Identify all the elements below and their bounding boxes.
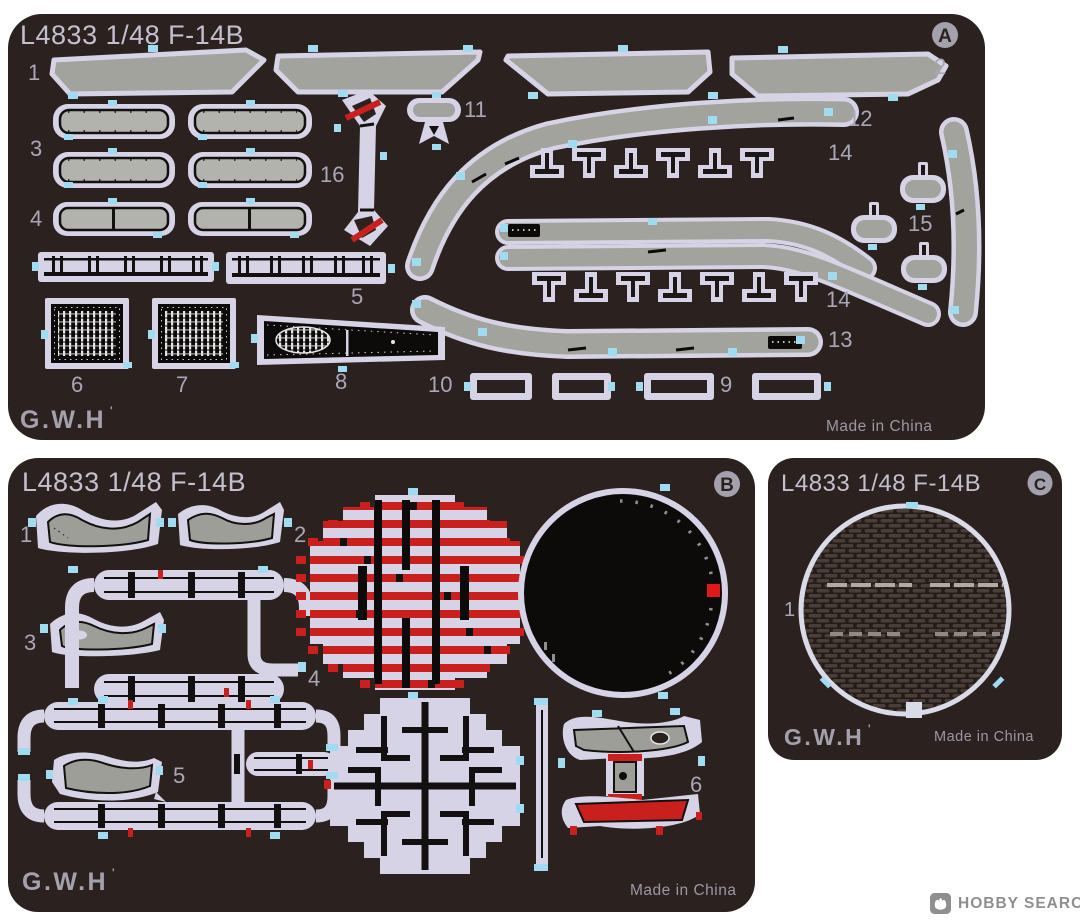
svg-text:B: B bbox=[720, 475, 734, 496]
fret-a-letter-badge: A bbox=[932, 22, 958, 48]
svg-text:13: 13 bbox=[828, 327, 852, 352]
svg-text:11: 11 bbox=[464, 97, 487, 122]
fret-a-gwh-logo: G.W.H bbox=[20, 406, 106, 434]
fret-a-origin: Made in China bbox=[826, 418, 932, 435]
svg-text:2: 2 bbox=[294, 522, 306, 547]
fret-c-letter-badge: C bbox=[1028, 471, 1053, 496]
product-photo: L4833 1/48 F-14B A bbox=[0, 0, 1080, 923]
svg-text:5: 5 bbox=[173, 763, 185, 788]
hobby-search-label: HOBBY SEARCH bbox=[958, 895, 1080, 913]
fret-a-gwh-tick: ' bbox=[110, 405, 113, 417]
part-5-blade bbox=[52, 753, 166, 802]
hobby-search-watermark: HOBBY SEARCH bbox=[930, 893, 1080, 914]
svg-text:5: 5 bbox=[351, 284, 363, 309]
svg-text:6: 6 bbox=[71, 372, 83, 397]
svg-text:16: 16 bbox=[320, 162, 344, 187]
fret-c-gwh-tick: ' bbox=[868, 723, 871, 735]
svg-text:4: 4 bbox=[308, 666, 320, 691]
fret-b: L4833 1/48 F-14B B bbox=[8, 458, 755, 912]
svg-text:2: 2 bbox=[934, 54, 946, 79]
svg-text:9: 9 bbox=[720, 372, 732, 397]
svg-text:6: 6 bbox=[690, 772, 702, 797]
hobby-search-logo-icon bbox=[930, 893, 951, 914]
svg-text:7: 7 bbox=[176, 372, 188, 397]
svg-text:1: 1 bbox=[28, 60, 40, 85]
svg-text:12: 12 bbox=[848, 106, 872, 131]
svg-text:10: 10 bbox=[428, 372, 452, 397]
fret-a: L4833 1/48 F-14B A bbox=[8, 14, 985, 440]
part-1-mesh-disc bbox=[801, 502, 1009, 718]
fret-b-gwh-logo: G.W.H bbox=[22, 868, 108, 896]
part-10-9-frames bbox=[470, 373, 821, 400]
svg-text:1: 1 bbox=[20, 522, 32, 547]
part-7-mesh bbox=[152, 298, 236, 369]
part-labels: 1 bbox=[784, 599, 795, 621]
svg-text:8: 8 bbox=[335, 369, 347, 394]
fret-b-origin: Made in China bbox=[630, 882, 736, 899]
part-4-disc bbox=[296, 495, 528, 690]
fret-b-gwh-tick: ' bbox=[112, 867, 115, 879]
svg-text:15: 15 bbox=[908, 211, 932, 236]
svg-text:1: 1 bbox=[784, 599, 795, 621]
svg-text:14: 14 bbox=[826, 287, 850, 312]
svg-text:A: A bbox=[938, 26, 952, 47]
svg-text:4: 4 bbox=[30, 206, 42, 231]
black-disc-part bbox=[521, 491, 725, 695]
svg-text:3: 3 bbox=[24, 630, 36, 655]
fret-b-title: L4833 1/48 F-14B bbox=[22, 467, 246, 497]
svg-text:C: C bbox=[1034, 475, 1046, 494]
part-6-mesh bbox=[45, 298, 129, 369]
fret-c-title: L4833 1/48 F-14B bbox=[781, 470, 981, 497]
svg-text:3: 3 bbox=[30, 136, 42, 161]
fret-b-letter-badge: B bbox=[714, 471, 740, 497]
fret-c-origin: Made in China bbox=[934, 729, 1034, 745]
svg-text:14: 14 bbox=[828, 140, 852, 165]
fret-c: L4833 1/48 F-14B C 1 G.W.H ' Made in Chi… bbox=[768, 458, 1062, 760]
fret-c-gwh-logo: G.W.H bbox=[784, 724, 864, 750]
fret-a-title: L4833 1/48 F-14B bbox=[20, 20, 244, 50]
